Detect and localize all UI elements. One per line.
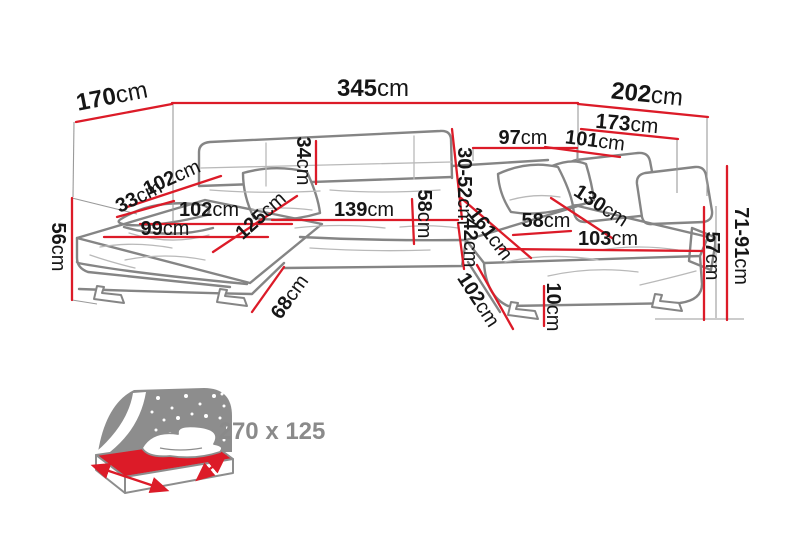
dim-label-103cm: 103cm [578,229,638,249]
dimension-labels: 170cm 345cm 202cm 173cm 97cm 101cm 30-52… [0,0,800,533]
dim-label-68cm: 68cm [268,271,313,322]
dim-label-58cm-center: 58cm [414,190,434,239]
dim-label-58cm-right: 58cm [522,211,571,231]
dim-label-130cm: 130cm [570,181,631,230]
dim-label-97cm: 97cm [499,128,548,148]
dim-label-102cm-base: 102cm [453,269,502,330]
sleeping-area-label: 270 x 125 [219,418,326,446]
dim-label-10cm: 10cm [543,283,563,332]
dim-label-170cm: 170cm [74,78,149,115]
dim-label-33cm: 33cm [113,177,166,216]
dim-label-99cm: 99cm [141,219,190,239]
dim-label-57cm: 57cm [702,232,722,281]
dim-label-71-91cm: 71-91cm [731,207,751,285]
dim-label-139cm: 139cm [334,200,394,220]
dim-label-345cm: 345cm [337,77,409,101]
sofa-dimension-diagram: 170cm 345cm 202cm 173cm 97cm 101cm 30-52… [0,0,800,533]
dim-label-56cm: 56cm [48,223,68,272]
dim-label-34cm: 34cm [293,137,313,186]
dim-label-125cm: 125cm [232,188,290,243]
dim-label-202cm: 202cm [610,79,684,110]
dim-label-102cm-seat: 102cm [179,200,239,220]
